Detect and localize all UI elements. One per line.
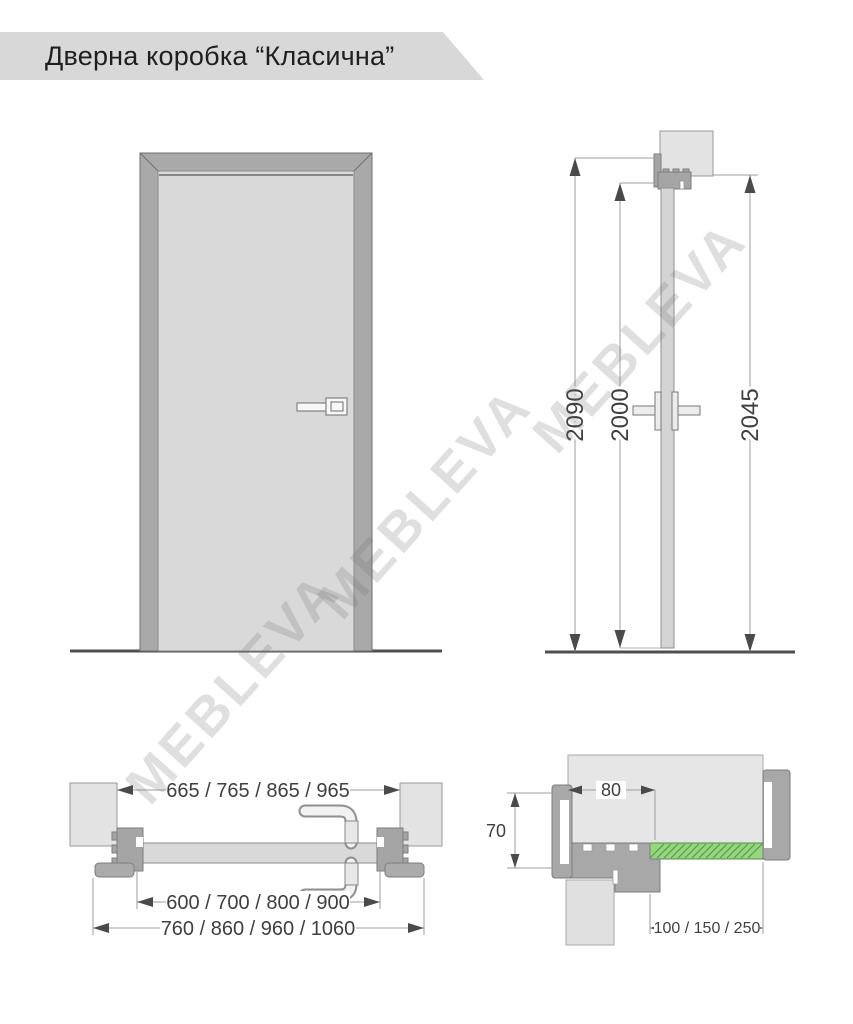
- dim-label-2090: 2090: [562, 388, 589, 441]
- frame-head-profile: [658, 169, 691, 189]
- side-view-drawing: 2090 2000 2045: [530, 115, 830, 675]
- casing-left: [552, 785, 572, 878]
- dim-label-extension-widths: 100 / 150 / 250: [654, 920, 761, 937]
- title-banner: Дверна коробка “Класична”: [0, 32, 484, 80]
- door-leaf-section: [143, 843, 377, 863]
- casing-left: [95, 863, 134, 877]
- wall-left: [70, 783, 117, 846]
- dimension-frame-height: 2045: [713, 175, 764, 652]
- door-leaf-section: [566, 880, 614, 945]
- extension-board-green: [650, 843, 763, 859]
- casing-right: [385, 863, 424, 877]
- dimension-frame-thickness: 70: [486, 793, 553, 868]
- dim-label-2045: 2045: [737, 388, 764, 441]
- dim-label-2000: 2000: [607, 388, 634, 441]
- detail-view-drawing: 80 70 100 / 150 / 250: [480, 740, 853, 980]
- dim-label-leaf-width: 600 / 700 / 800 / 900: [166, 892, 350, 914]
- dim-label-frame-inner-width: 665 / 765 / 865 / 965: [166, 780, 350, 802]
- dimension-extension-width: 100 / 150 / 250: [650, 862, 763, 937]
- dim-label-80: 80: [601, 780, 621, 800]
- casing-right: [763, 770, 790, 860]
- dim-label-70: 70: [486, 821, 506, 841]
- dimension-frame-inner-width: 665 / 765 / 865 / 965: [117, 779, 400, 802]
- front-view-drawing: [60, 120, 460, 665]
- page-title: Дверна коробка “Класична”: [0, 41, 394, 72]
- dim-label-overall-width: 760 / 860 / 960 / 1060: [161, 918, 356, 940]
- plan-view-drawing: 665 / 765 / 865 / 965 600 / 700 / 800 / …: [60, 745, 460, 960]
